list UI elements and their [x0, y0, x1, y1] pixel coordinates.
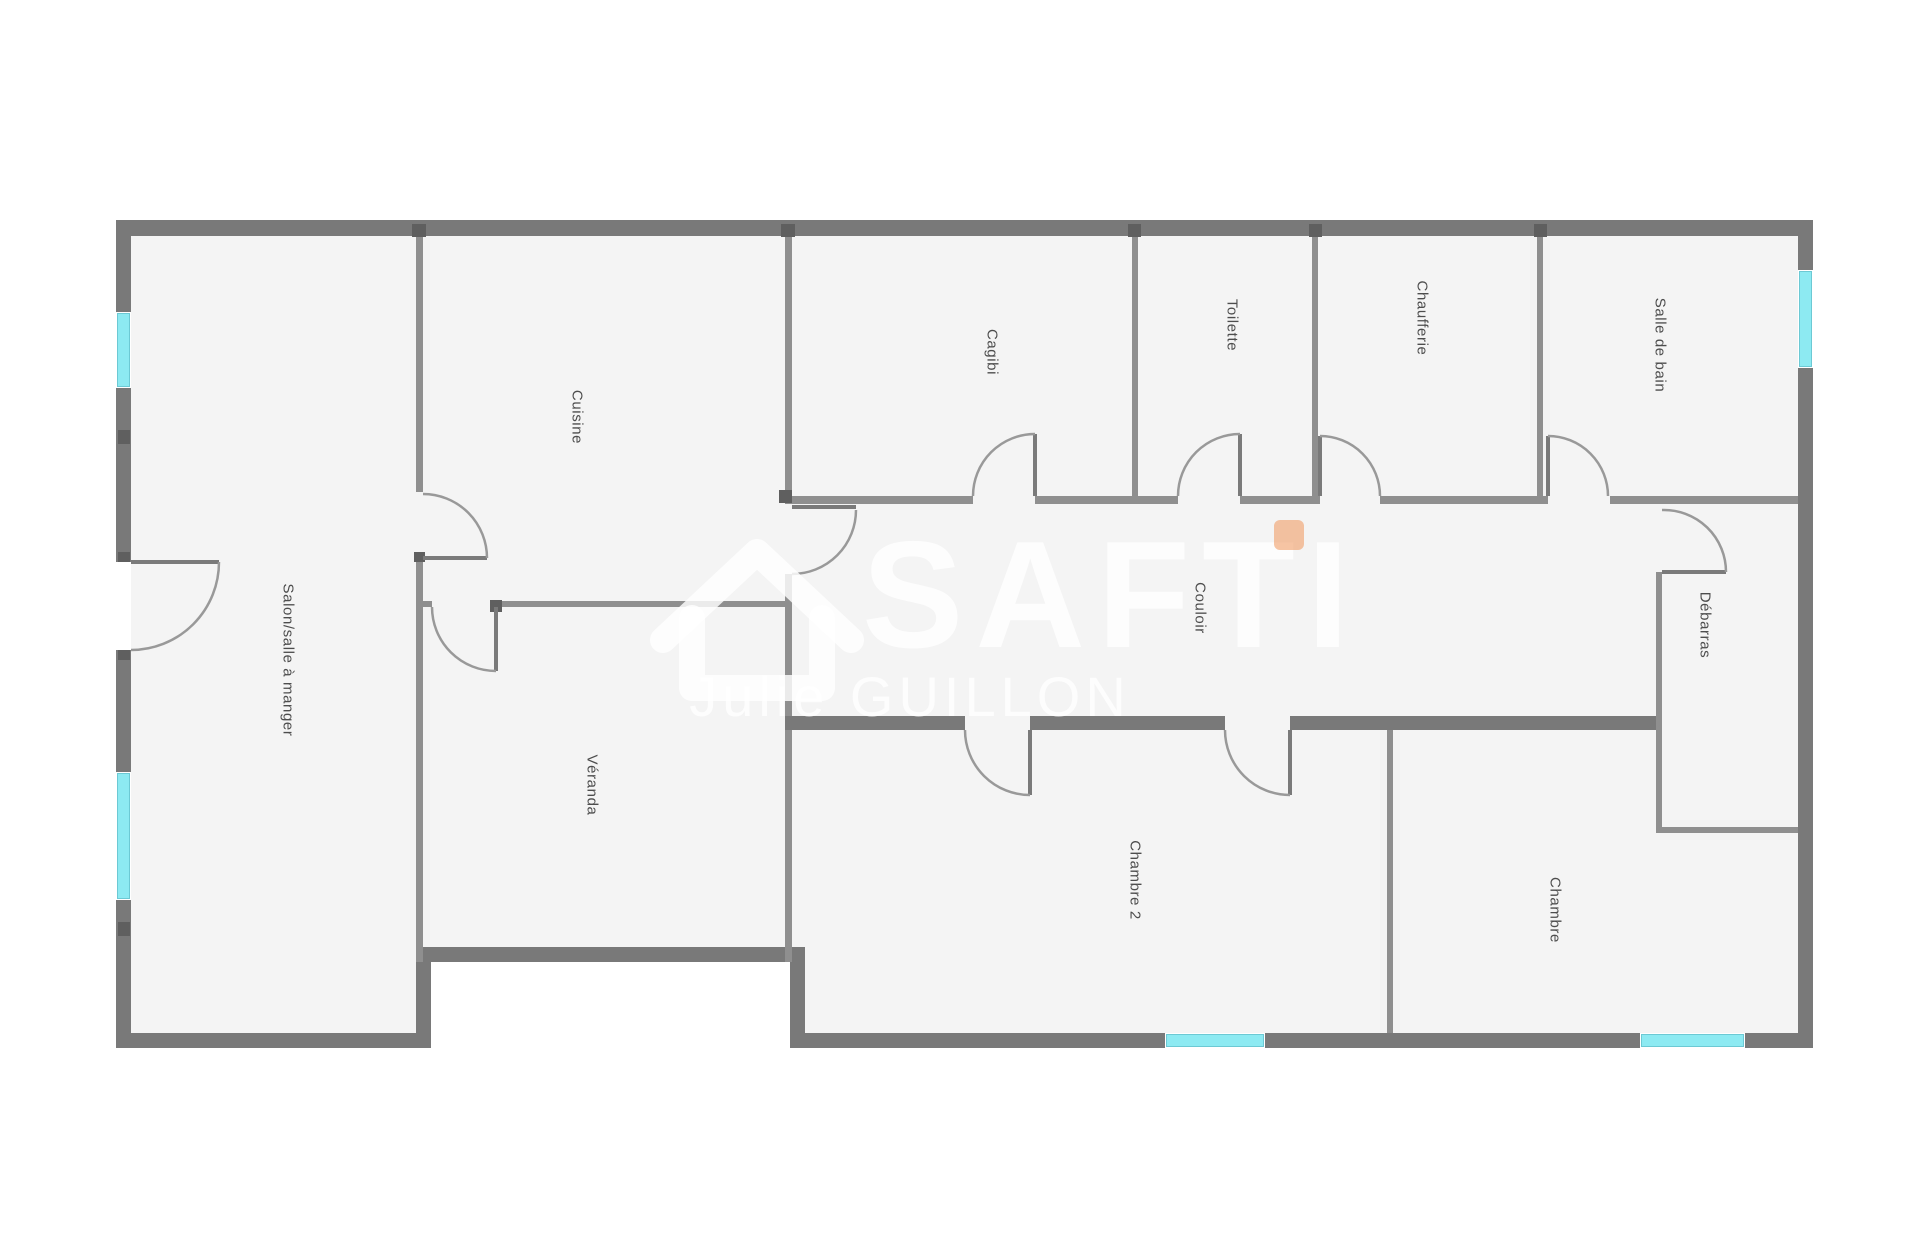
room-label-chambre-2: Chambre 2 [1127, 840, 1144, 920]
door-arc [131, 562, 219, 650]
door-arc [973, 434, 1035, 496]
room-label-cagibi: Cagibi [984, 329, 1001, 375]
door-arc [1225, 730, 1290, 795]
room-label-cuisine: Cuisine [569, 390, 586, 444]
door-arc [1320, 436, 1380, 496]
watermark-brand-dot [1274, 520, 1304, 550]
door-arc [1662, 510, 1726, 572]
room-label-debarras: Débarras [1697, 592, 1714, 659]
room-label-chaufferie: Chaufferie [1414, 281, 1431, 356]
door-arc [1548, 436, 1608, 496]
door-arc [432, 607, 496, 671]
door-arc [792, 510, 856, 574]
room-label-salle-de-bain: Salle de bain [1652, 298, 1669, 393]
room-label-salon: Salon/salle à manger [280, 584, 297, 737]
watermark-agent-name: Julie GUILLON [590, 664, 1230, 729]
room-label-chambre: Chambre [1547, 877, 1564, 943]
room-label-couloir: Couloir [1192, 582, 1209, 634]
room-label-veranda: Véranda [584, 755, 601, 816]
door-arc [423, 494, 487, 558]
floor-plan-page: SAFTI Julie GUILLON Salon/salle à manger… [0, 0, 1920, 1247]
room-label-toilette: Toilette [1224, 299, 1241, 351]
door-arc [1178, 434, 1240, 496]
door-arc [965, 730, 1030, 795]
